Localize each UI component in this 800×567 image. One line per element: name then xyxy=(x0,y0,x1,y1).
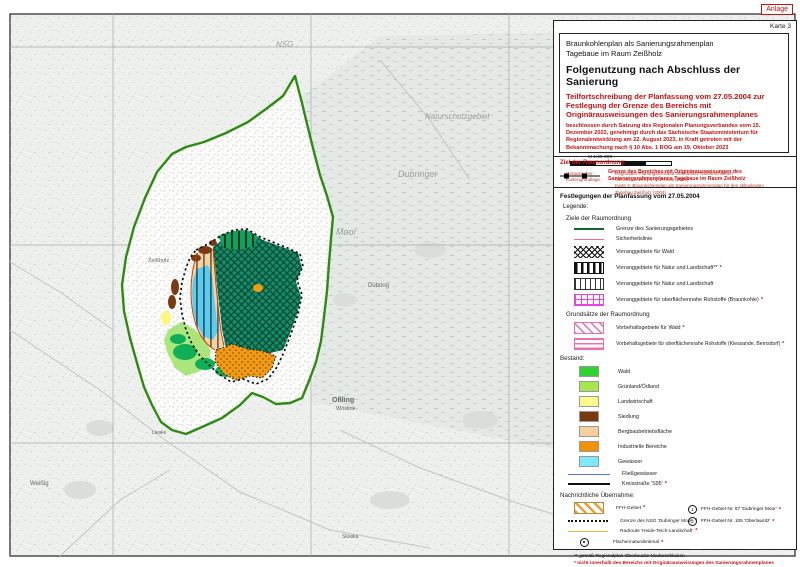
legend-row: 1 FFH-Gebiet Nr. 67 'Dubringer Moor' * xyxy=(688,505,796,514)
label-ossling-sorbian: Wóslink xyxy=(336,406,355,412)
bestand-heading: Bestand: xyxy=(560,355,790,362)
label-dubring: Dubring xyxy=(368,283,389,289)
vorbehalt-rohstoffe-swatch xyxy=(574,338,604,350)
bergbau-chip xyxy=(579,426,599,437)
vorrang-rohstoffe-swatch xyxy=(574,294,604,306)
legend-row: Fließgewässer xyxy=(574,471,790,477)
ziel-heading: Ziel der Raumordnung: xyxy=(560,160,790,166)
legend-row: Flächennaturdenkmal * xyxy=(574,538,790,547)
ziel-section: Ziel der Raumordnung: Grenze des Bereich… xyxy=(554,156,796,188)
label-skaska: Skaska xyxy=(342,534,358,540)
legende-label: Legende: xyxy=(563,204,790,210)
legend-row: Vorranggebiete für Natur und Landschaft xyxy=(574,278,790,290)
legend-row: Kreisstraße 'S95' * xyxy=(574,481,790,487)
radroute-swatch xyxy=(568,531,608,532)
label-dubringer: Dubringer xyxy=(398,169,438,179)
fliessgewaesser-swatch xyxy=(568,474,610,475)
flaechennaturdenkmal-icon xyxy=(580,538,589,547)
karte-number: Karte 3 xyxy=(770,23,791,30)
map-title: Folgenutzung nach Abschluss der Sanierun… xyxy=(566,64,782,88)
decision-note: beschlossen durch Satzung des Regionalen… xyxy=(566,123,771,152)
grenze-sanierungsgebiet-swatch xyxy=(574,228,604,230)
grundsaetze-heading: Grundsätze der Raumordnung xyxy=(566,311,790,318)
map-subtitle: Teilfortschreibung der Planfassung vom 2… xyxy=(566,92,780,120)
label-ossling: Oßling xyxy=(332,397,354,404)
legend-row: Vorbehaltsgebiete für oberflächennahe Ro… xyxy=(574,338,790,350)
anlage-badge: Anlage xyxy=(761,4,793,15)
zone-landwirtschaft xyxy=(161,311,171,325)
festlegungen-heading: Festlegungen der Planfassung vom 27.05.2… xyxy=(560,193,790,200)
label-weissig: Weißig xyxy=(30,481,49,487)
legend-row: Wald xyxy=(574,366,790,377)
circle-1-icon: 1 xyxy=(688,505,697,514)
kreisstrasse-swatch xyxy=(568,483,610,485)
legend-row: Gewässer xyxy=(574,456,790,467)
legend-row: Landwirtschaft xyxy=(574,396,790,407)
footnote-black: ** gemäß Regionalplan Oberlausitz-Nieder… xyxy=(574,553,790,560)
circle-2-icon: 2 xyxy=(688,517,697,526)
ffh-swatch xyxy=(574,502,604,514)
label-zeissholz: Zeißholz xyxy=(148,258,169,264)
legend-row: Grenze des Sanierungsgebietes xyxy=(574,226,790,232)
legend-row: Vorranggebiete für Wald xyxy=(574,246,790,258)
legend-row: Vorbehaltsgebiete für Wald * xyxy=(574,322,790,334)
legend-row: Vorranggebiete für oberflächennahe Rohst… xyxy=(574,294,790,306)
industrie-chip xyxy=(579,441,599,452)
legend-row: Industrielle Bereiche xyxy=(574,441,790,452)
ziel-item-line2: Sanierungsrahmenplanes Tagebaue im Raum … xyxy=(608,176,745,183)
title-block: Braunkohlenplan als Sanierungsrahmenplan… xyxy=(559,33,789,153)
label-nsg: NSG xyxy=(276,40,293,49)
footnotes: ** gemäß Regionalplan Oberlausitz-Nieder… xyxy=(574,553,790,567)
label-lieske: Lieske xyxy=(152,430,166,436)
plan-line1: Braunkohlenplan als Sanierungsrahmenplan xyxy=(566,39,782,49)
vorrang-natur-swatch xyxy=(574,278,604,290)
vorbehalt-wald-swatch xyxy=(574,322,604,334)
legend-panel: Karte 3 Braunkohlenplan als Sanierungsra… xyxy=(553,20,797,550)
legend-row: Grünland/Ödland xyxy=(574,381,790,392)
ziel-item-line1: Grenze des Bereiches mit Originärausweis… xyxy=(608,169,745,176)
ziele-heading: Ziele der Raumordnung xyxy=(566,215,790,222)
vorrang-natur-bold-swatch xyxy=(574,262,604,274)
nachrichtlich-block: FFH-Gebiet * Grenze des NSG 'Dubringer M… xyxy=(560,502,790,547)
vorrang-wald-swatch xyxy=(574,246,604,258)
legend-row: Siedlung xyxy=(574,411,790,422)
legend: Festlegungen der Planfassung vom 27.05.2… xyxy=(560,193,790,567)
legend-row: Sicherheitslinie xyxy=(574,236,790,242)
legend-row: Radroute 'Heide-Teich-Landschaft' * xyxy=(574,528,790,534)
nachrichtlich-heading: Nachrichtliche Übernahme: xyxy=(560,492,790,499)
label-naturschutzgebiet: Naturschutzgebiet xyxy=(425,112,489,121)
wald-chip xyxy=(579,366,599,377)
label-moor: Moor xyxy=(336,227,357,237)
legend-row: 2 FFH-Gebiet Nr. 105 'Oberlausitz' * xyxy=(688,517,796,526)
nsg-grenze-swatch xyxy=(568,520,608,522)
gewaesser-chip xyxy=(579,456,599,467)
siedlung-chip xyxy=(579,411,599,422)
zone-industrie-small xyxy=(253,284,263,292)
nachrichtlich-numbered: 1 FFH-Gebiet Nr. 67 'Dubringer Moor' * 2… xyxy=(688,502,796,526)
legend-row: Vorranggebiete für Natur und Landschaft*… xyxy=(574,262,790,274)
sicherheitslinie-swatch xyxy=(574,239,604,240)
landwirtschaft-chip xyxy=(579,396,599,407)
gruenland-chip xyxy=(579,381,599,392)
map-sheet: NSG Naturschutzgebiet Dubringer Moor Zei… xyxy=(0,0,800,566)
originaer-boundary-symbol xyxy=(560,172,600,180)
plan-line2: Tagebaue im Raum Zeißholz xyxy=(566,49,782,59)
legend-row: Bergbaubetriebsfläche xyxy=(574,426,790,437)
